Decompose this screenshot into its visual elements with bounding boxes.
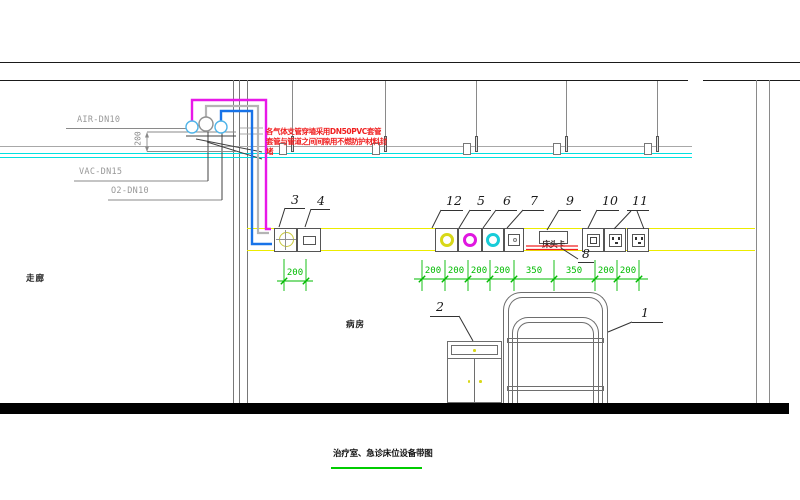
o2-pipe-label: O2-DN10 [111,186,149,196]
roof-slab-line [0,62,800,64]
callout-leader-4-0 [305,209,311,227]
hanger-clamp-3 [553,143,561,155]
hanger-rod-3 [566,81,567,141]
blank-plate-icon [303,236,316,245]
hanger-clamp-2 [463,143,471,155]
callout-underline-3 [285,208,305,209]
small-dimension-tick-1 [303,278,309,284]
ceiling-grid-cyan-line-1 [0,153,692,154]
dimension-tick-4 [511,276,517,282]
device-11a [604,228,626,252]
bed-head-card-label: 床头卡 [542,240,565,249]
callout-underline-4 [311,209,330,210]
vac-pipe-label: VAC-DN15 [79,167,122,177]
callout-underline-11 [627,210,649,211]
cabinet-door-divider [474,358,475,403]
socket-slot-bottom-icon [638,242,641,244]
right-wall-line-2 [769,80,770,403]
corridor-label: 走廊 [26,272,45,284]
callout-leader-3-0 [279,208,285,227]
socket-slot-right-icon [618,237,620,240]
dimension-value-6: 200 [598,266,614,276]
callout-number-5: 5 [477,195,485,207]
dimension-tick-6 [592,276,598,282]
dimension-arrowhead-1 [145,147,149,153]
ceiling-grid-cyan-line-2 [0,157,692,158]
gas-terminal-ring-icon [486,233,500,247]
gas-terminal-ring-icon [440,233,454,247]
callout-underline-9 [559,210,581,211]
hanger-rod-4 [657,81,658,141]
dimension-tick-7 [614,276,620,282]
dimension-value-2: 200 [471,266,487,276]
callout-underline-2 [430,316,459,317]
dimension-value-7: 200 [620,266,636,276]
ceiling-beam-line-left [0,80,688,81]
callout-leader-12-0 [432,210,441,228]
socket-plate-icon [609,234,622,247]
gas-outlet-valve-0 [186,121,198,133]
riser-dimension-text: 200 [134,129,143,149]
cabinet-door-handle-left [468,380,471,383]
callout-underline-8 [578,262,594,263]
callout-leader-6-0 [483,210,496,228]
gas-pipe-gray [206,106,269,233]
callout-number-6: 6 [503,195,511,207]
bed-rail-upper [507,338,604,343]
outlet-core-icon [590,237,597,244]
dimension-tick-0 [419,276,425,282]
callout-leader-11-0 [614,211,631,229]
callout-leader-10-0 [588,210,597,228]
hanger-fitting-4 [656,136,660,152]
cabinet-door-handle-right [479,380,482,383]
callout-number-3: 3 [291,194,299,206]
hanger-fitting-2 [475,136,479,152]
callout-leader-7-0 [507,210,523,228]
device-7 [504,228,524,252]
hanger-rod-1 [385,81,386,141]
dimension-arrowhead-0 [145,132,149,138]
dimension-value-1: 200 [448,266,464,276]
callout-underline-5 [470,210,491,211]
callout-number-10: 10 [602,195,618,207]
ceiling-beam-line-right [703,80,800,81]
gas-outlet-valve-2 [215,121,227,133]
device-4 [297,228,321,252]
drawing-title: 治疗室、急诊床位设备带图 [333,447,433,459]
cross-v-icon [285,230,286,250]
callout-number-2: 2 [436,301,444,313]
device-5 [458,228,482,252]
air-pipe-label: AIR-DN10 [77,115,120,125]
callout-underline-12 [441,210,463,211]
hanger-rod-2 [476,81,477,141]
dimension-tick-1 [442,276,448,282]
gas-sleeve-note-line-3: 堵 [266,146,273,157]
socket-slot-right-icon [641,237,643,240]
socket-slot-left-icon [612,237,614,240]
callout-underline-10 [597,210,619,211]
dimension-value-5: 350 [566,266,582,276]
drawing-title-underline [331,467,422,470]
partition-wall-line-3 [247,80,248,403]
small-dimension-value: 200 [287,268,303,278]
device-6 [482,228,504,252]
dimension-tick-5 [551,276,557,282]
callout-number-12: 12 [446,195,462,207]
switch-button-icon [513,238,517,242]
hanger-fitting-3 [565,136,569,152]
callout-underline-6 [496,210,517,211]
callout-number-9: 9 [566,195,574,207]
device-11b [627,228,649,252]
gas-terminal-ring-icon [463,233,477,247]
device-3 [274,228,297,252]
cad-drawing-canvas: 床头卡 AIR-DN10 VAC-DN15 O2-DN10 200 各气体支管穿… [0,0,800,500]
gas-pipe-magenta [192,100,271,229]
socket-slot-left-icon [635,237,637,240]
dimension-value-3: 200 [494,266,510,276]
callout-leader-2-0 [459,316,473,341]
partition-wall-line-2 [239,80,240,403]
dimension-tick-8 [636,276,642,282]
callout-underline-1 [632,322,663,323]
hanger-clamp-4 [644,143,652,155]
callout-number-1: 1 [641,307,649,319]
small-dimension-tick-0 [281,278,287,284]
socket-slot-bottom-icon [615,242,618,244]
bed-rail-lower [507,386,604,391]
callout-leader-1-0 [608,322,632,332]
device-12 [435,228,458,252]
bed-footboard-inner [517,322,594,403]
gas-outlet-valve-1 [199,117,213,131]
callout-number-8: 8 [582,248,590,260]
socket-plate-icon [632,234,645,247]
partition-wall-line-1 [233,80,234,403]
callout-leader-5-0 [459,210,470,228]
floor-slab [0,403,789,414]
callout-number-11: 11 [632,195,648,207]
callout-leader-11-1 [637,211,644,229]
callout-number-4: 4 [317,195,325,207]
gas-sleeve-note-line-2: 套管与管道之间间隙用不燃防护材料封 [266,136,387,147]
dimension-value-4: 350 [526,266,542,276]
dimension-value-0: 200 [425,266,441,276]
callout-underline-7 [523,210,544,211]
right-wall-line-1 [756,80,757,403]
callout-number-7: 7 [530,195,538,207]
ward-label: 病房 [346,318,365,330]
bed-head-card-box: 床头卡 [539,231,568,244]
dimension-tick-3 [487,276,493,282]
dimension-tick-2 [465,276,471,282]
cabinet-drawer-handle [473,349,476,352]
